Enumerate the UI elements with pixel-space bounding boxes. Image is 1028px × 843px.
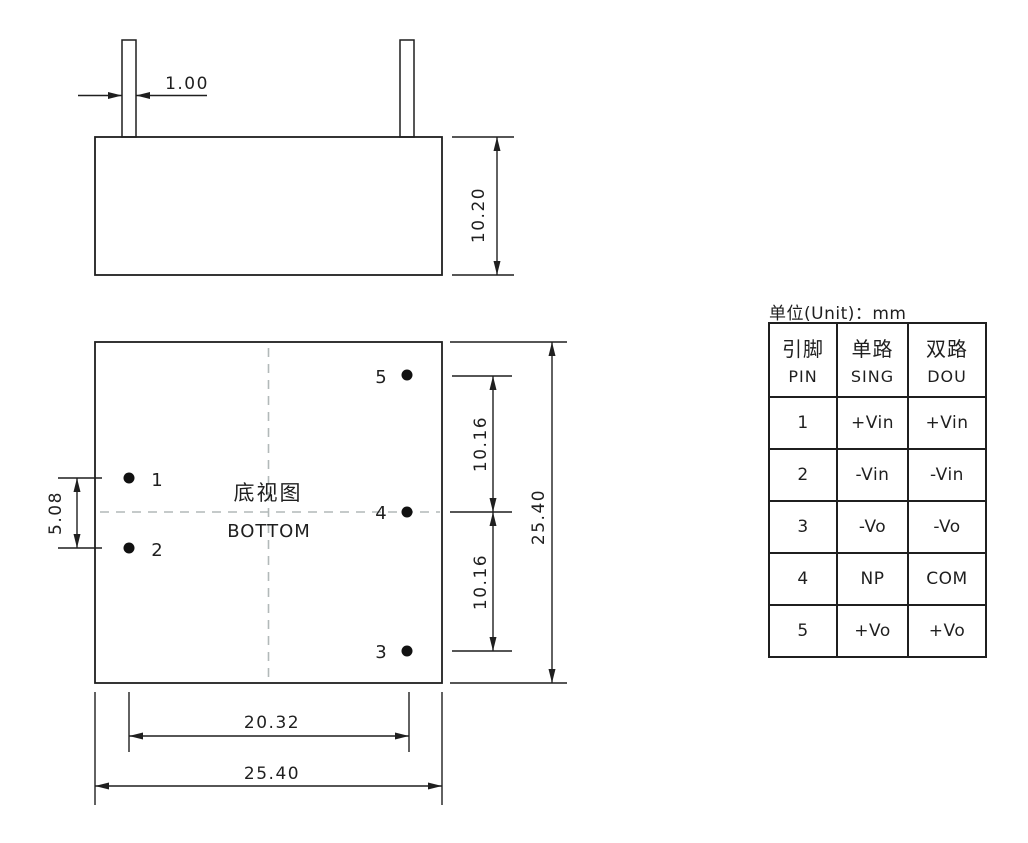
- pin-dot-5: [402, 370, 413, 381]
- cell-sing: +Vin: [837, 397, 908, 449]
- pin-dot-3: [402, 646, 413, 657]
- cell-pin: 1: [769, 397, 837, 449]
- arrowhead: [428, 783, 442, 790]
- pin-dot-1: [124, 473, 135, 484]
- col-header-dou: 双路 DOU: [908, 323, 986, 397]
- arrowhead: [549, 669, 556, 683]
- side-view-body: [95, 137, 442, 275]
- cell-sing: -Vo: [837, 501, 908, 553]
- dim-pitch-lower-label: 10.16: [471, 554, 491, 610]
- col-header-dou-en: DOU: [909, 364, 985, 390]
- dim-body-height-side-label: 10.20: [469, 187, 489, 243]
- view-title-cn: 底视图: [234, 481, 303, 505]
- cell-sing: +Vo: [837, 605, 908, 657]
- dim-pin-pitch-left-label: 5.08: [46, 491, 66, 535]
- table-row: 4 NP COM: [769, 553, 986, 605]
- unit-note: 单位(Unit)：mm: [769, 299, 907, 324]
- cell-sing: -Vin: [837, 449, 908, 501]
- bottom-view: 1 2 5 4 3 底视图 BOTTOM: [95, 342, 442, 683]
- dim-body-width-label: 25.40: [244, 764, 300, 784]
- arrowhead: [490, 498, 497, 512]
- arrowhead: [490, 376, 497, 390]
- cell-dou: COM: [908, 553, 986, 605]
- table-row: 5 +Vo +Vo: [769, 605, 986, 657]
- cell-pin: 5: [769, 605, 837, 657]
- col-header-sing-cn: 单路: [838, 334, 907, 364]
- side-view-pin-left: [122, 40, 136, 137]
- bottom-view-right-dims: [450, 342, 567, 683]
- arrowhead: [74, 478, 81, 492]
- table-row: 2 -Vin -Vin: [769, 449, 986, 501]
- cell-dou: +Vin: [908, 397, 986, 449]
- col-header-dou-cn: 双路: [909, 334, 985, 364]
- arrowhead: [494, 137, 501, 151]
- arrowhead: [490, 512, 497, 526]
- col-header-sing-en: SING: [838, 364, 907, 390]
- cell-dou: -Vo: [908, 501, 986, 553]
- table-row: 3 -Vo -Vo: [769, 501, 986, 553]
- arrowhead: [494, 261, 501, 275]
- dim-pin-width-label: 1.00: [165, 74, 209, 94]
- dim-pitch-upper-label: 10.16: [471, 416, 491, 472]
- arrowhead: [95, 783, 109, 790]
- dim-pin-span-label: 20.32: [244, 713, 300, 733]
- table-header-row: 引脚 PIN 单路 SING 双路 DOU: [769, 323, 986, 397]
- arrowhead: [108, 92, 122, 99]
- dim-body-height-bottom-label: 25.40: [529, 489, 549, 545]
- cell-pin: 3: [769, 501, 837, 553]
- pin-dot-2: [124, 543, 135, 554]
- cell-dou: -Vin: [908, 449, 986, 501]
- arrowhead: [549, 342, 556, 356]
- pin-label-1: 1: [151, 470, 162, 491]
- pin-label-3: 3: [375, 642, 386, 663]
- arrowhead: [129, 733, 143, 740]
- col-header-sing: 单路 SING: [837, 323, 908, 397]
- arrowhead: [395, 733, 409, 740]
- side-view: [95, 40, 442, 275]
- bottom-view-bottom-dims: [95, 692, 442, 805]
- pin-label-2: 2: [151, 540, 162, 561]
- arrowhead: [490, 637, 497, 651]
- cell-dou: +Vo: [908, 605, 986, 657]
- pin-dot-4: [402, 507, 413, 518]
- mechanical-drawing-page: 1.00 10.20 1 2 5 4 3: [0, 0, 1028, 843]
- pin-label-4: 4: [375, 503, 386, 524]
- arrowhead: [136, 92, 150, 99]
- cell-sing: NP: [837, 553, 908, 605]
- pin-label-5: 5: [375, 367, 386, 388]
- view-title-en: BOTTOM: [227, 521, 311, 542]
- cell-pin: 2: [769, 449, 837, 501]
- col-header-pin-cn: 引脚: [770, 334, 836, 364]
- cell-pin: 4: [769, 553, 837, 605]
- side-view-pin-right: [400, 40, 414, 137]
- table-row: 1 +Vin +Vin: [769, 397, 986, 449]
- pin-function-table: 引脚 PIN 单路 SING 双路 DOU 1 +Vin +Vin 2 -: [768, 322, 987, 658]
- arrowhead: [74, 534, 81, 548]
- col-header-pin: 引脚 PIN: [769, 323, 837, 397]
- col-header-pin-en: PIN: [770, 364, 836, 390]
